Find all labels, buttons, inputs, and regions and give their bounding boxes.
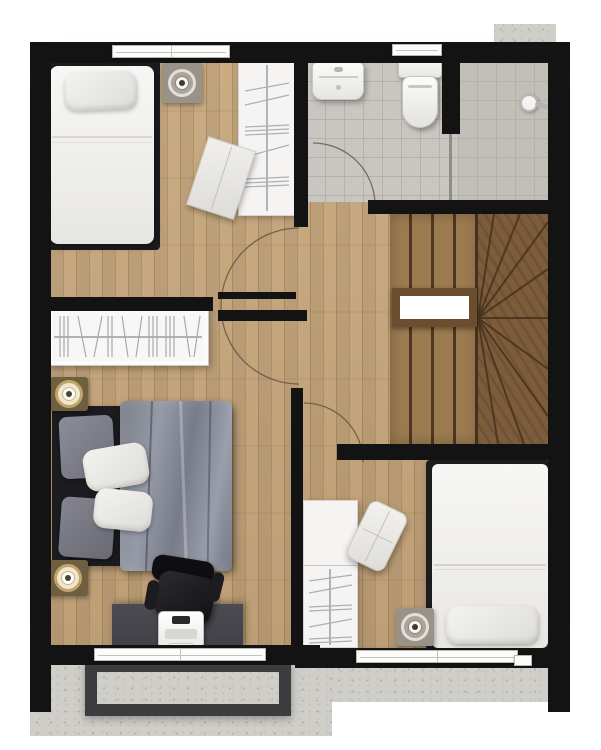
window-bedroom-bottom-left bbox=[94, 648, 266, 661]
staircase bbox=[390, 214, 548, 444]
wall-bedroom1-south bbox=[30, 297, 213, 311]
ceiling-speaker-icon bbox=[50, 377, 88, 411]
shower-head-icon bbox=[520, 93, 550, 115]
blanket-fold bbox=[52, 142, 152, 143]
stair-winder-treads bbox=[478, 214, 548, 444]
wall-shower-partition bbox=[442, 62, 460, 134]
window-bedroom-top bbox=[112, 45, 230, 58]
wall-right bbox=[548, 42, 570, 712]
wall-bathroom-west bbox=[294, 62, 308, 227]
wall-bathroom-south bbox=[368, 200, 548, 214]
pillow bbox=[63, 71, 136, 111]
wall-door-leaf-upper bbox=[218, 292, 296, 299]
shower-tile-floor bbox=[458, 62, 548, 202]
ceiling-speaker-icon bbox=[48, 560, 88, 596]
wall-top bbox=[30, 42, 570, 63]
blanket-fold bbox=[52, 136, 152, 138]
pillow bbox=[446, 606, 538, 644]
laptop bbox=[158, 611, 204, 649]
bookshelf bbox=[48, 308, 208, 365]
wardrobe-hangers bbox=[238, 60, 296, 216]
ceiling-speaker-icon bbox=[396, 608, 434, 646]
wall-hall-divider bbox=[291, 388, 303, 650]
floor-plan bbox=[0, 0, 601, 750]
wardrobe-hangers bbox=[303, 500, 358, 648]
window-toilet bbox=[392, 44, 442, 56]
toilet bbox=[398, 54, 442, 130]
stair-void-opening bbox=[392, 288, 477, 327]
wash-basin bbox=[312, 62, 364, 100]
white-pillow bbox=[92, 487, 154, 533]
shower-glass-partition bbox=[449, 134, 452, 200]
faucet-icon bbox=[334, 67, 343, 72]
duvet bbox=[120, 401, 232, 571]
stair-straight-treads bbox=[390, 214, 478, 444]
right-concrete-ledge bbox=[332, 664, 570, 702]
wall-stairs-south bbox=[337, 444, 548, 460]
wall-door-leaf-lower bbox=[218, 310, 307, 321]
window-sill-stub bbox=[514, 655, 532, 666]
wall-left bbox=[30, 42, 51, 712]
ceiling-speaker-icon bbox=[162, 62, 202, 103]
window-bedroom-bottom-right bbox=[356, 650, 518, 663]
balcony-planter-frame bbox=[85, 660, 291, 716]
